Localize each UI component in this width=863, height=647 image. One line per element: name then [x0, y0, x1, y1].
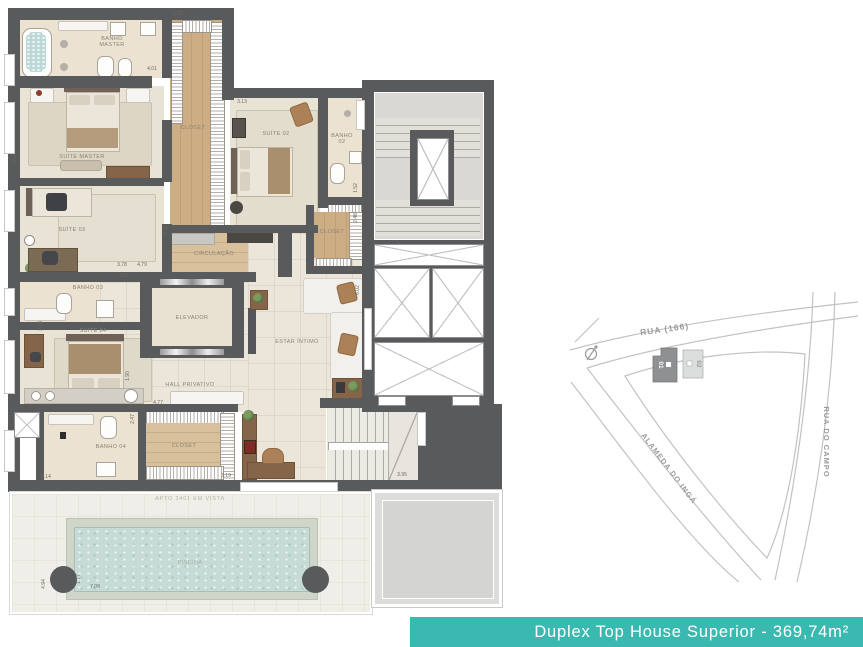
wall — [318, 197, 366, 205]
dimension: 3.19 — [221, 473, 231, 479]
planter — [50, 566, 77, 593]
counter-sink — [124, 389, 138, 403]
shaft — [432, 268, 484, 338]
dimension: 4.92 — [163, 225, 169, 235]
shaft — [14, 412, 40, 438]
shaft — [374, 342, 484, 396]
console-dark — [227, 233, 273, 243]
room-label: ELEVADOR — [176, 315, 209, 321]
dimension: 4.01 — [147, 66, 157, 72]
wall — [222, 88, 370, 98]
shower — [96, 300, 114, 318]
dimension: 2.47 — [130, 414, 136, 424]
desk-chair — [262, 448, 284, 464]
floorplan-page: BANHO MASTER CLOSET SUÍTE MASTER SUÍTE 0… — [0, 0, 863, 647]
wall — [222, 225, 318, 233]
dimension: 4.77 — [153, 400, 163, 406]
terrace-door — [240, 482, 338, 492]
patio-inner — [382, 500, 494, 599]
title-banner: Duplex Top House Superior - 369,74m² — [410, 617, 863, 647]
suite-03-lounge-chair — [46, 193, 67, 211]
wall — [418, 404, 502, 492]
building-02-label: 02 — [695, 360, 702, 368]
tray — [336, 382, 345, 393]
dimension: 1.90 — [125, 371, 131, 381]
dimension: 2.48 — [353, 213, 359, 223]
wardrobe — [182, 20, 212, 33]
shaft-detail — [378, 396, 406, 406]
compass-icon — [586, 345, 598, 360]
door — [417, 412, 426, 446]
toilet — [330, 163, 345, 184]
dimension: 1.52 — [353, 183, 359, 193]
wall — [162, 20, 172, 78]
hall-console — [170, 391, 244, 405]
shaft — [374, 244, 484, 266]
wall — [306, 205, 314, 273]
dimension: 6.02 — [355, 285, 361, 295]
wardrobe — [146, 466, 224, 480]
shaft-detail — [452, 396, 480, 406]
window — [4, 190, 15, 232]
dimension: 3.95 — [397, 472, 407, 478]
wall — [318, 88, 328, 208]
bathtub-water — [26, 32, 46, 72]
window — [4, 340, 15, 394]
window — [364, 308, 372, 370]
building-01-label: 01 — [657, 361, 664, 369]
dimension: 2.61 — [343, 267, 353, 273]
room-label: CIRCULAÇÃO — [194, 251, 234, 257]
suite-04-bed-headboard — [66, 334, 124, 341]
plant — [253, 293, 263, 303]
stairs-winder — [388, 408, 419, 480]
bath-accessory — [60, 432, 66, 439]
bath-counter — [48, 414, 94, 425]
room-label: BANHO MASTER — [92, 36, 132, 48]
dimension: 2.38 — [38, 321, 44, 331]
suite-master-bench — [60, 160, 102, 171]
stairs-lower-flight — [328, 450, 388, 480]
suite-master-nightstand — [126, 88, 150, 103]
suite-03-mirror — [24, 235, 35, 246]
suite-master-pillow — [94, 95, 115, 105]
wall — [8, 404, 142, 412]
suite-master-throw — [67, 128, 118, 148]
site-map: 01 02 RUA (166) RUA DO CAMPO ALAMEDA DO … — [565, 290, 863, 582]
building-01 — [653, 348, 677, 382]
counter-sink — [45, 391, 55, 401]
dimension: 4.94 — [41, 579, 47, 589]
suite-02-wardrobe-item — [232, 118, 246, 138]
suite-master-nightstand — [30, 88, 54, 103]
shower-drain — [344, 110, 351, 117]
apto-note: APTO 3401 EM VISTA — [155, 496, 225, 502]
room-label: HALL PRIVATIVO — [165, 382, 214, 388]
room-label: BANHO 02 — [329, 133, 355, 145]
street-label-rua-do-campo: RUA DO CAMPO — [822, 406, 831, 477]
coffee-machine — [244, 440, 256, 454]
toilet — [100, 416, 117, 439]
dimension: 7.08 — [90, 584, 100, 590]
suite-03-chair — [42, 251, 58, 265]
room-label: CLOSET — [320, 229, 344, 235]
elevator-door — [160, 279, 224, 285]
room-label: PISCINA — [178, 560, 203, 566]
plant — [243, 410, 254, 421]
wall — [162, 120, 172, 182]
room-label: SUÍTE 02 — [262, 131, 289, 137]
bidet — [118, 58, 132, 78]
map-buildings: 01 02 — [653, 348, 703, 382]
stair-void — [417, 138, 449, 200]
wall — [222, 8, 234, 100]
desk — [247, 462, 295, 479]
wall — [278, 233, 292, 277]
suite-02-pillow — [240, 150, 250, 169]
shower-drain — [60, 63, 68, 71]
room-label: SUÍTE 04 — [79, 328, 106, 334]
planter — [302, 566, 329, 593]
room-label: BANHO 03 — [73, 285, 103, 291]
elevator-door — [160, 349, 224, 355]
wall — [8, 76, 152, 88]
window — [4, 102, 15, 154]
wall — [8, 8, 234, 20]
window — [4, 288, 15, 316]
window — [4, 54, 15, 86]
plant — [348, 381, 359, 392]
street-label-rua-166: RUA (166) — [639, 321, 689, 338]
room-label: BANHO 04 — [96, 444, 126, 450]
map-roads — [570, 292, 858, 582]
toilet — [97, 56, 114, 78]
room-label: SUÍTE MASTER — [59, 154, 104, 160]
room-label: CLOSET — [172, 443, 196, 449]
dimension: 1.77 — [76, 574, 82, 584]
wall — [8, 178, 164, 186]
floorplan: BANHO MASTER CLOSET SUÍTE MASTER SUÍTE 0… — [0, 0, 520, 620]
nightstand-lamp — [36, 90, 42, 96]
dimension: 3.14 — [41, 474, 51, 480]
sink — [110, 22, 126, 36]
room-label: CLOSET — [181, 125, 205, 131]
bath-bench — [58, 21, 108, 31]
dimension: 1.73 — [173, 11, 183, 17]
tv-panel — [248, 308, 256, 354]
stairs-upper-flight — [328, 408, 388, 442]
dimension: 3.78 — [117, 262, 127, 268]
window — [356, 100, 365, 130]
dimension: 4.02 — [12, 155, 18, 165]
room-label: SUÍTE 03 — [58, 227, 85, 233]
dimension: 4.79 — [137, 262, 147, 268]
shaft — [374, 268, 430, 338]
plan-title: Duplex Top House Superior - 369,74m² — [534, 623, 849, 642]
wall — [164, 225, 222, 233]
room-label: ESTAR ÍNTIMO — [275, 339, 319, 345]
wall — [306, 266, 370, 274]
closet-02-floor — [314, 212, 350, 258]
building-01-window — [666, 362, 671, 367]
wall — [138, 408, 146, 482]
sink — [140, 22, 156, 36]
suite-02-ottoman — [230, 201, 243, 214]
shower-drain — [60, 40, 68, 48]
sink — [349, 151, 362, 164]
suite-02-pillow — [240, 172, 250, 191]
suite-04-vanity — [24, 334, 44, 368]
suite-master-pillow — [69, 95, 90, 105]
wardrobe — [171, 22, 183, 124]
counter-sink — [31, 391, 41, 401]
suite-04-stool — [30, 352, 41, 362]
suite-04-canopy — [69, 344, 121, 374]
dimension: 3.13 — [237, 99, 247, 105]
shower — [96, 462, 116, 477]
building-02-window — [687, 361, 692, 366]
dimension: 3.97 — [119, 273, 129, 279]
suite-02-throw — [268, 148, 290, 194]
toilet — [56, 293, 72, 314]
